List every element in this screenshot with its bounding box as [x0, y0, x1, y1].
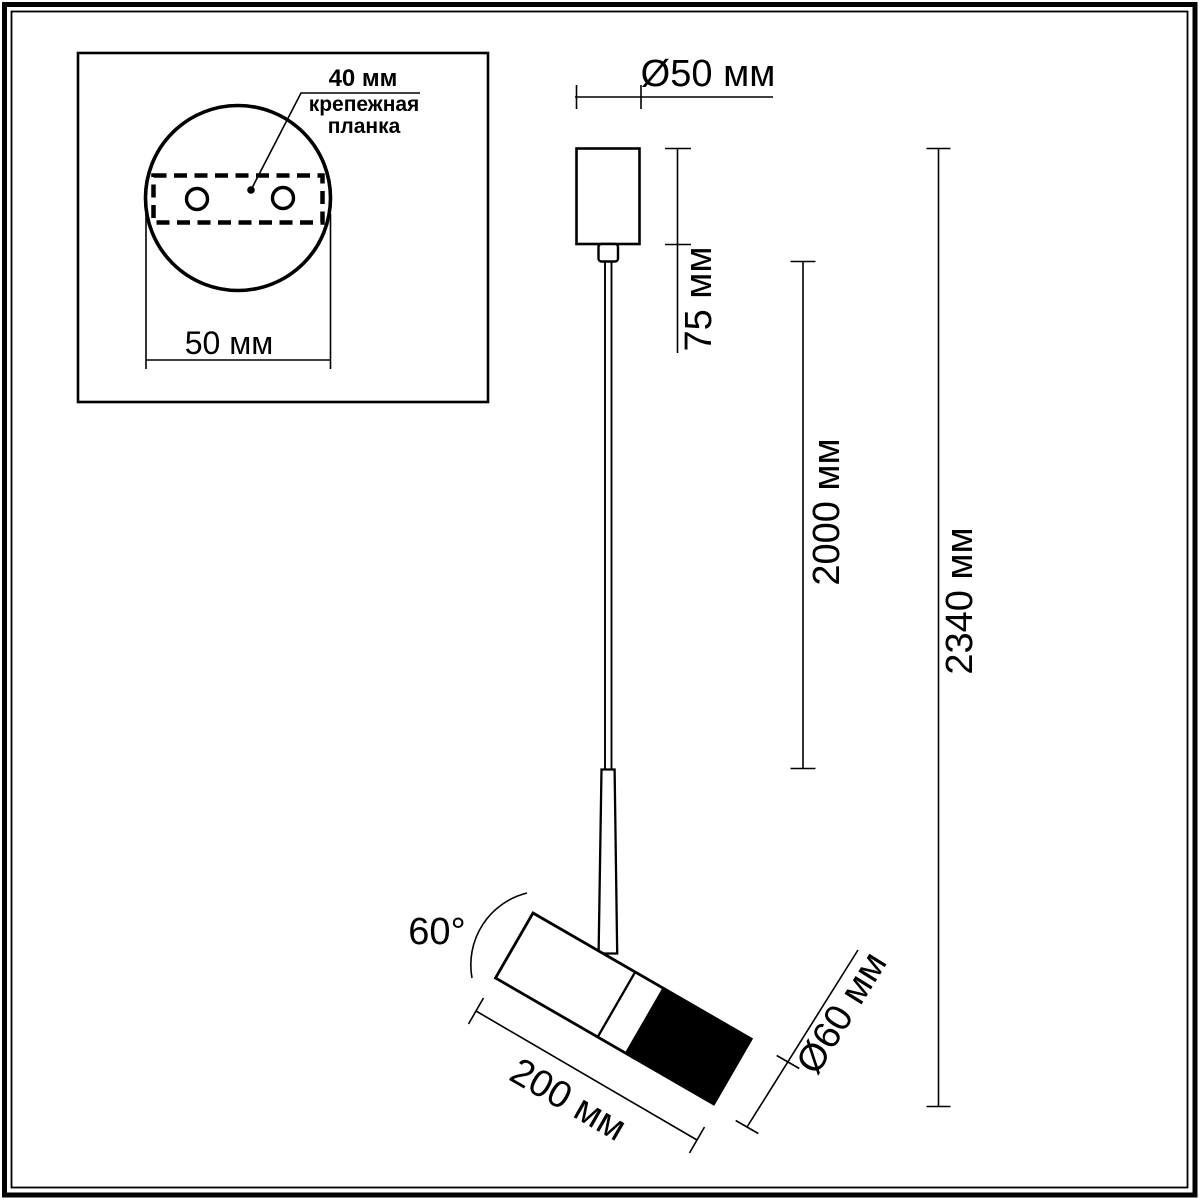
tick-head-diameter-bottom: [736, 1121, 759, 1134]
label-mounting-plate-line2: планка: [309, 116, 420, 138]
dimension-label-tilt-angle: 60°: [408, 913, 465, 951]
inset-screw-hole-right: [273, 188, 294, 209]
label-hole-spacing: 40 мм: [329, 67, 398, 91]
inset-mounting-plate-dashed: [154, 176, 323, 223]
label-mounting-plate: крепежная планка: [309, 94, 420, 138]
tick-head-length-left: [469, 998, 484, 1024]
dimension-label-canopy-diameter: Ø50 мм: [641, 55, 776, 93]
dimension-label-overall-height: 2340 мм: [941, 527, 979, 674]
tick-head-length-right: [690, 1127, 705, 1153]
technical-drawing-page: 40 мм крепежная планка 50 мм Ø50 мм 75 м…: [0, 0, 1200, 1200]
inset-detail-box: [78, 53, 488, 402]
dimension-label-cable-length: 2000 мм: [808, 438, 846, 585]
dimension-label-base-width: 50 мм: [185, 327, 273, 359]
stem-taper: [599, 770, 618, 954]
canopy-neck: [599, 244, 619, 262]
dimension-label-canopy-height: 75 мм: [680, 246, 718, 351]
inset-base-circle: [146, 106, 331, 291]
drawing-linework: [0, 0, 1200, 1200]
ceiling-canopy: [577, 149, 640, 245]
label-mounting-plate-line1: крепежная: [309, 94, 420, 116]
inset-screw-hole-left: [187, 189, 208, 210]
